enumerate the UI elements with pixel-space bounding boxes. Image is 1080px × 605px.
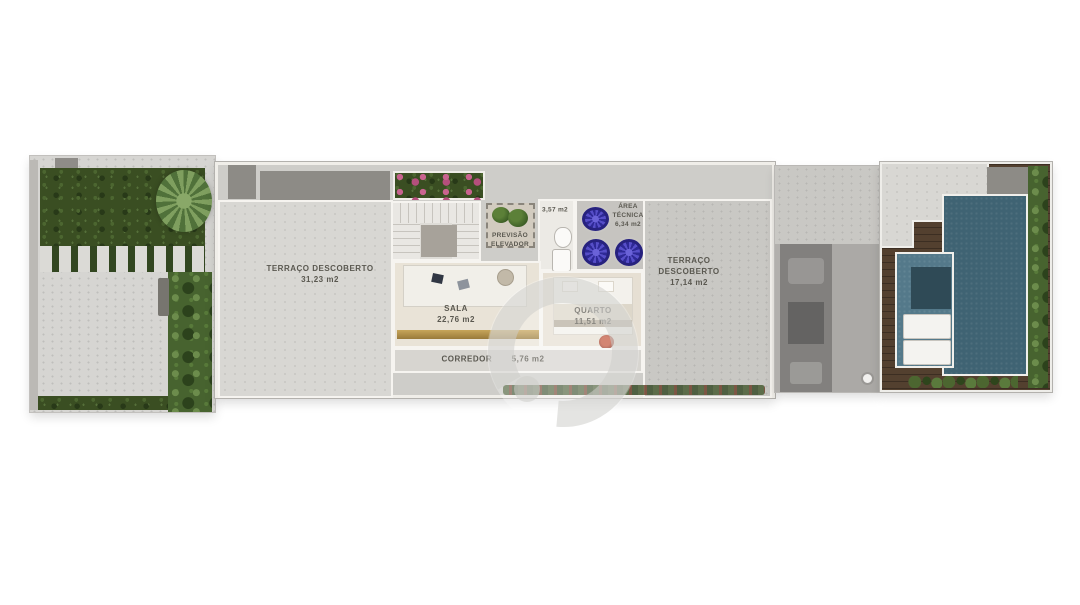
room-area: 11,51 m2 <box>574 317 612 328</box>
room-label-living: SALA 22,76 m2 <box>437 304 475 326</box>
window-sill <box>397 330 539 339</box>
room-label-terrace-right: TERRAÇO DESCOBERTO 17,14 m2 <box>658 256 719 288</box>
bottom-hedge <box>38 396 168 410</box>
roof-slab <box>260 171 390 200</box>
technical-area: 6,34 m2 <box>613 220 644 229</box>
stair-treads-left <box>393 223 420 259</box>
plan-strip: TERRAÇO DESCOBERTO 31,23 m2 PREVISÃO ELE… <box>30 156 1052 412</box>
outdoor-shower <box>861 372 874 385</box>
furniture-below <box>788 258 824 284</box>
building-section: TERRAÇO DESCOBERTO 31,23 m2 PREVISÃO ELE… <box>215 162 775 398</box>
stair-treads-top <box>393 203 479 223</box>
pergola-slab <box>987 167 1030 195</box>
pink-flowers <box>393 171 485 200</box>
shrub <box>508 209 528 227</box>
room-area: 17,14 m2 <box>658 277 719 288</box>
stair-landing <box>421 225 457 257</box>
room-label-technical-area: ÁREA TÉCNICA 6,34 m2 <box>613 203 644 229</box>
sun-lounger <box>903 314 951 339</box>
glass-roof <box>780 244 832 392</box>
elevator-label-line2: ELEVADOR <box>491 241 529 250</box>
garden-section <box>30 156 215 412</box>
sunken-lounge <box>911 267 951 309</box>
room-terrace-right <box>643 199 772 398</box>
room-name: CORREDOR <box>442 355 493 364</box>
pool <box>942 194 1028 376</box>
room-label-bathroom: 3,57 m2 <box>542 207 568 216</box>
roof-slab <box>228 165 256 199</box>
room-terrace-left <box>218 200 393 398</box>
room-name: QUARTO <box>574 306 612 317</box>
pool-sun-shelf <box>895 252 954 368</box>
room-area: 22,76 m2 <box>437 315 475 326</box>
room-name: TERRAÇO DESCOBERTO <box>266 264 373 275</box>
staircase <box>391 201 481 261</box>
technical-label-line1: ÁREA <box>613 203 644 212</box>
pillow <box>457 279 470 290</box>
room-name: SALA <box>437 304 475 315</box>
room-area: 5,76 m2 <box>512 355 545 364</box>
edge-planting-strip <box>503 385 765 395</box>
concrete-walk <box>832 244 880 392</box>
toilet <box>554 227 572 248</box>
bed-pillow <box>562 281 578 292</box>
pool-section <box>880 162 1052 392</box>
palm-tree <box>156 170 212 232</box>
courtyard-section <box>775 166 880 392</box>
room-label-elevator: PREVISÃO ELEVADOR <box>491 232 529 250</box>
room-label-terrace-left: TERRAÇO DESCOBERTO 31,23 m2 <box>266 264 373 286</box>
room-name-line1: TERRAÇO <box>658 256 719 267</box>
shrub-column <box>168 272 212 412</box>
ac-unit <box>580 237 612 268</box>
concrete-slab-step <box>882 220 914 248</box>
elevator-label-line1: PREVISÃO <box>491 232 529 241</box>
furniture-below <box>788 302 824 344</box>
red-plant <box>599 335 614 349</box>
side-table <box>497 269 514 286</box>
pillow <box>431 273 444 284</box>
sun-lounger <box>903 340 951 365</box>
floorplan-render: TERRAÇO DESCOBERTO 31,23 m2 PREVISÃO ELE… <box>0 0 1080 605</box>
room-label-corridor: CORREDOR 5,76 m2 <box>442 355 545 366</box>
vine-hedge <box>1028 166 1048 388</box>
ac-unit <box>580 205 611 233</box>
technical-label-line2: TÉCNICA <box>613 212 644 221</box>
ac-unit <box>613 237 645 268</box>
concrete-roof <box>775 166 880 244</box>
room-label-bedroom: QUARTO 11,51 m2 <box>574 306 612 328</box>
gate-post <box>158 278 169 316</box>
bathroom-area: 3,57 m2 <box>542 207 568 214</box>
room-area: 31,23 m2 <box>266 275 373 286</box>
sink <box>552 249 571 272</box>
furniture-below <box>790 362 822 384</box>
flower-planter <box>393 171 485 200</box>
bed-pillow <box>598 281 614 292</box>
deck-plants <box>908 376 1018 388</box>
boundary-wall <box>30 160 38 410</box>
stepping-stones <box>40 246 205 272</box>
room-name-line2: DESCOBERTO <box>658 267 719 278</box>
